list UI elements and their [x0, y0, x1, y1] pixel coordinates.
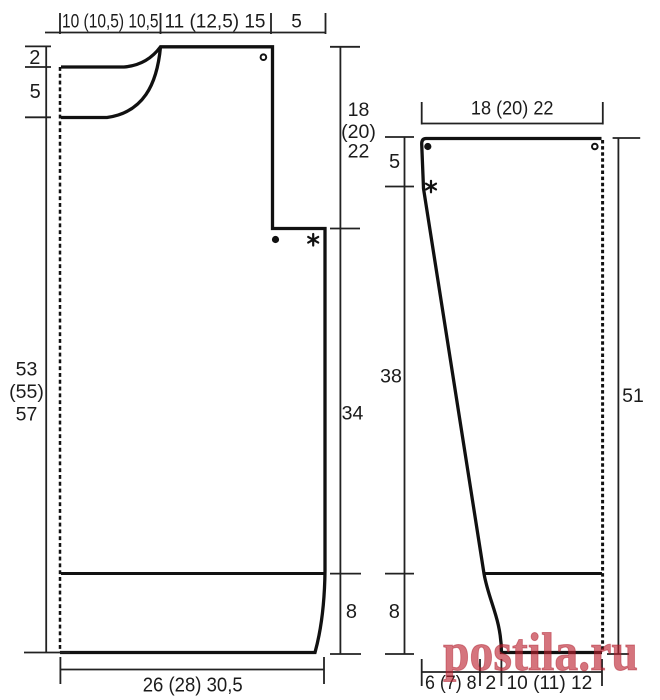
svg-text:5: 5: [389, 151, 400, 173]
svg-text:22: 22: [348, 141, 370, 163]
svg-text:5: 5: [30, 81, 41, 103]
svg-text:34: 34: [342, 403, 364, 425]
svg-text:38: 38: [380, 366, 402, 388]
svg-text:18: 18: [348, 99, 370, 121]
svg-text:57: 57: [16, 403, 38, 425]
svg-text:2: 2: [29, 47, 40, 69]
svg-text:10 (10,5) 10,5: 10 (10,5) 10,5: [62, 12, 159, 33]
svg-text:(55): (55): [9, 381, 44, 403]
svg-text:51: 51: [622, 385, 644, 407]
svg-text:8: 8: [389, 601, 400, 623]
svg-text:postila.ru: postila.ru: [443, 622, 638, 682]
svg-text:53: 53: [16, 359, 38, 381]
svg-text:26 (28) 30,5: 26 (28) 30,5: [143, 674, 243, 697]
svg-text:5: 5: [291, 12, 302, 33]
svg-text:(20): (20): [341, 121, 376, 143]
svg-text:11 (12,5) 15: 11 (12,5) 15: [165, 12, 266, 33]
svg-text:18 (20) 22: 18 (20) 22: [471, 98, 554, 120]
svg-text:8: 8: [346, 601, 357, 623]
